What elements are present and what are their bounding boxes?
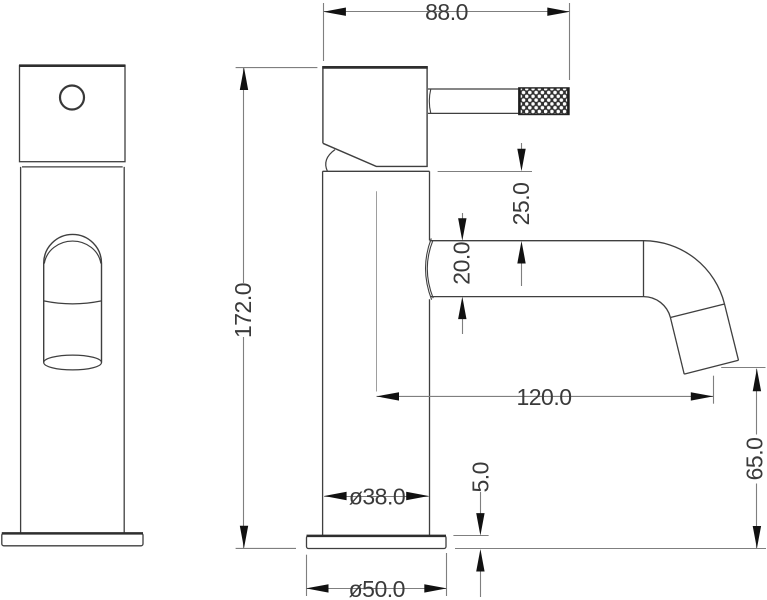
svg-text:65.0: 65.0 [742, 438, 767, 481]
svg-text:120.0: 120.0 [516, 384, 571, 410]
svg-text:172.0: 172.0 [230, 283, 256, 338]
svg-text:25.0: 25.0 [508, 183, 534, 226]
svg-text:88.0: 88.0 [425, 0, 468, 25]
svg-text:ø38.0: ø38.0 [349, 483, 405, 509]
svg-text:20.0: 20.0 [448, 242, 474, 285]
svg-text:ø50.0: ø50.0 [349, 576, 405, 600]
svg-text:5.0: 5.0 [468, 462, 494, 492]
